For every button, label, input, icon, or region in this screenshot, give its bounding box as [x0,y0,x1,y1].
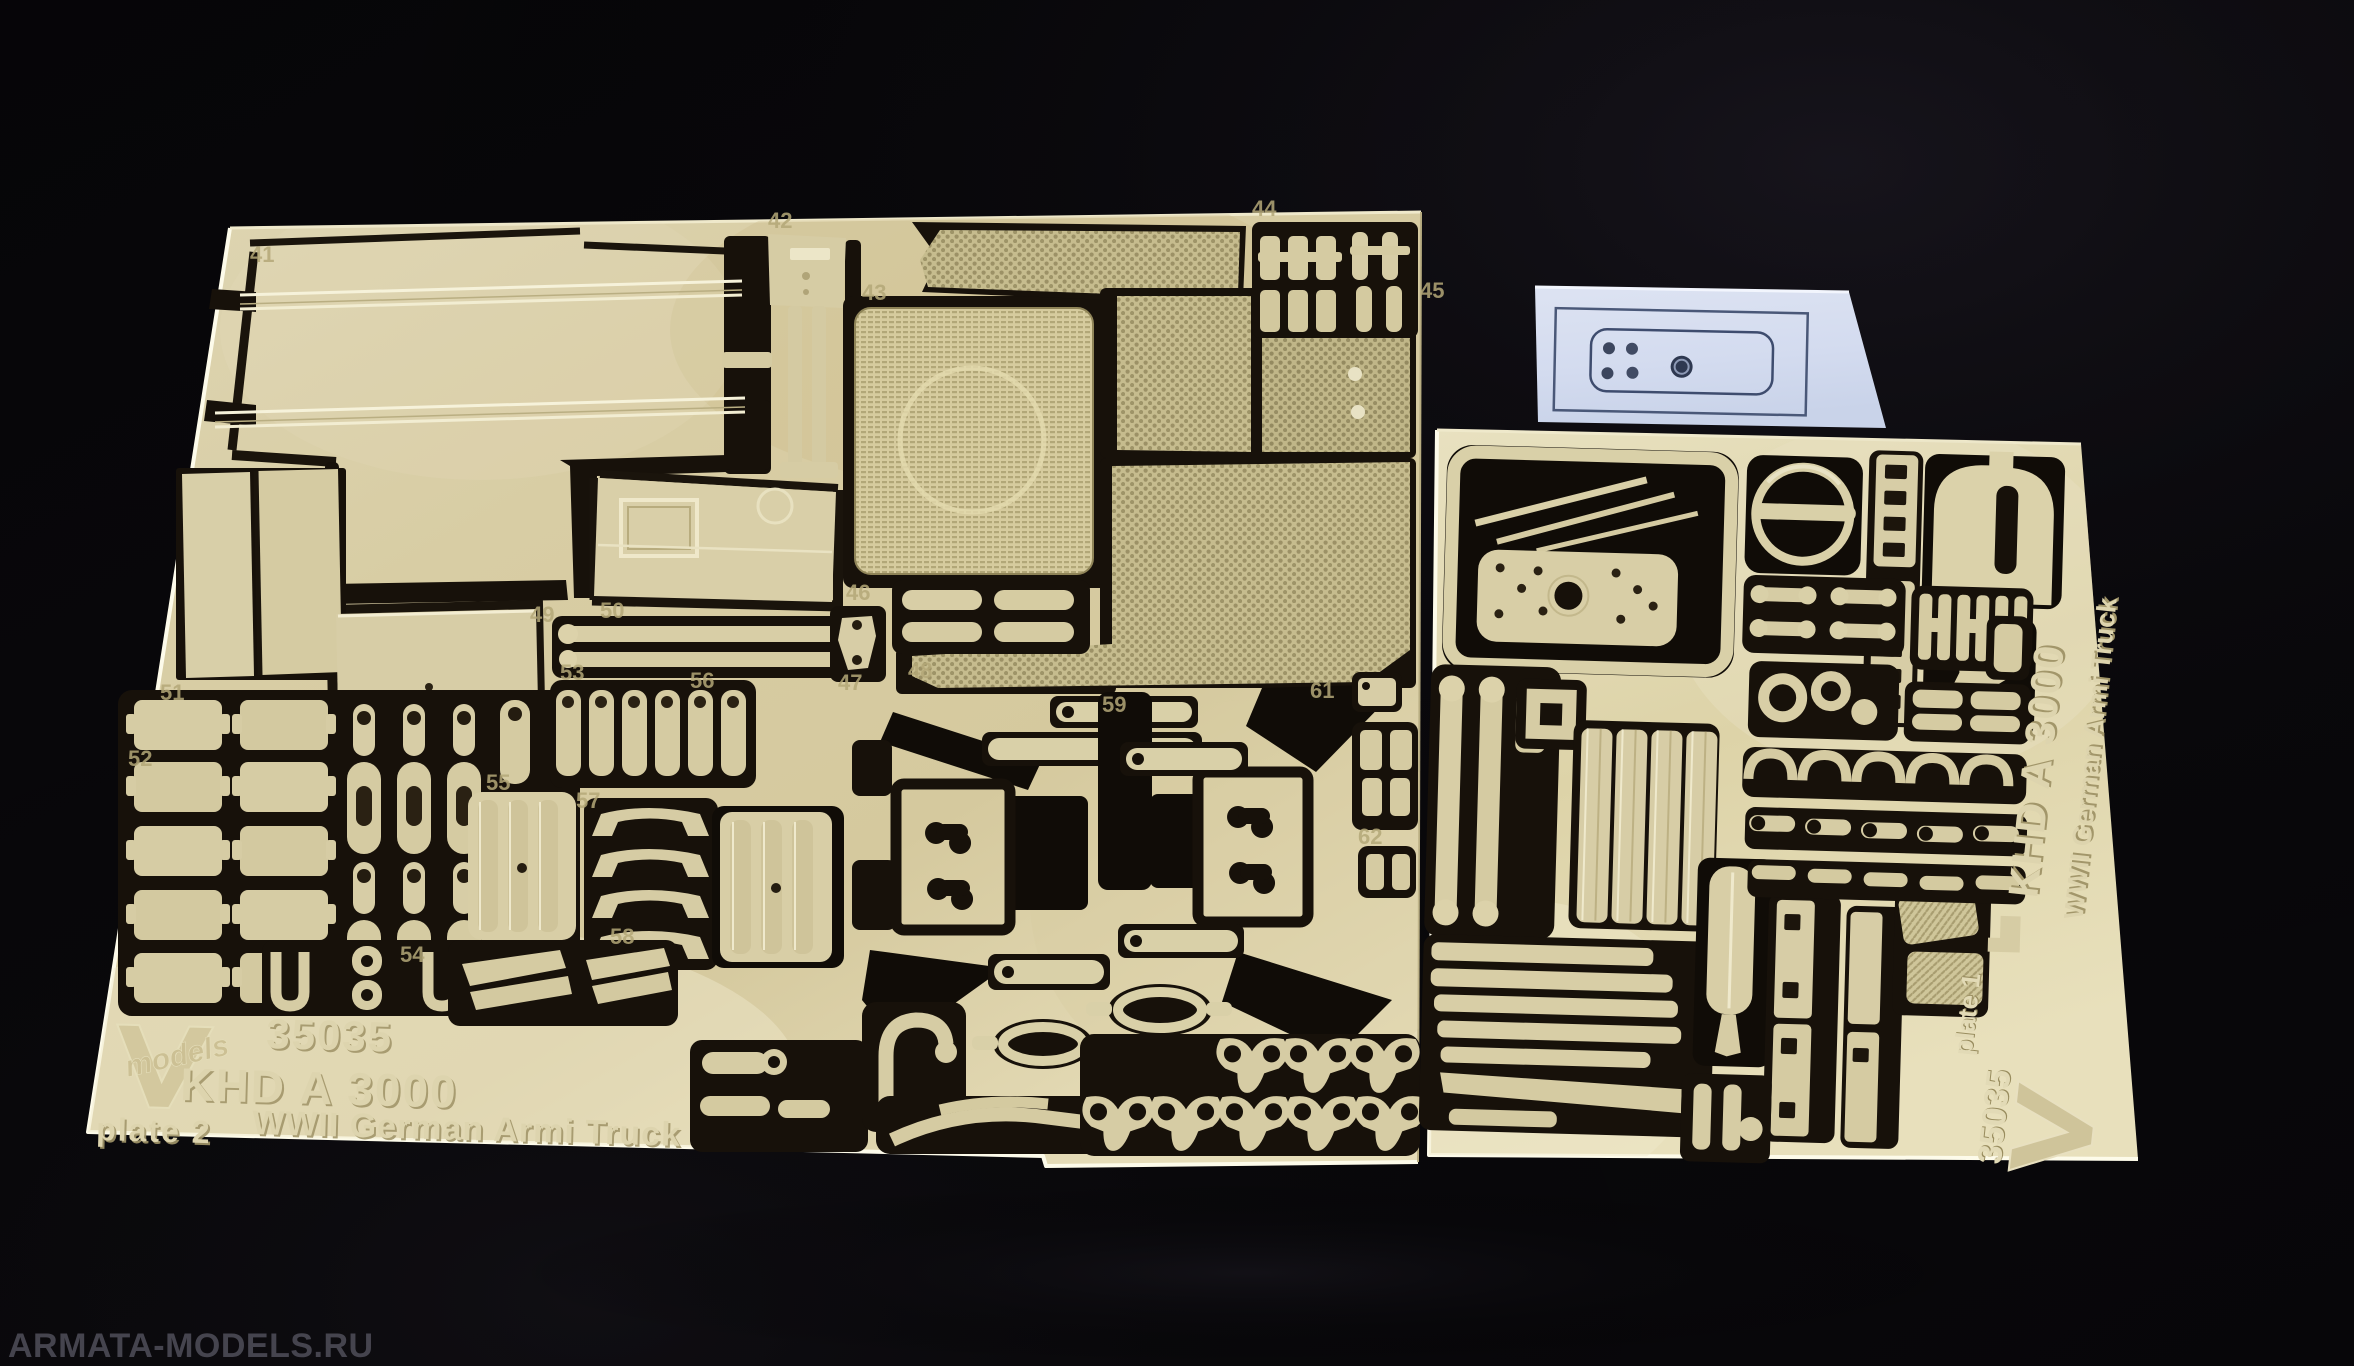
svg-text:49: 49 [530,602,554,627]
svg-text:59: 59 [1102,692,1126,717]
svg-text:ARMATA-MODELS.RU: ARMATA-MODELS.RU [8,1327,374,1365]
svg-text:48: 48 [908,658,932,683]
svg-text:43: 43 [862,280,886,305]
svg-text:54: 54 [400,942,425,967]
svg-text:58: 58 [610,924,634,949]
svg-text:52: 52 [128,746,152,771]
svg-text:42: 42 [768,208,792,233]
svg-text:61: 61 [1310,678,1334,703]
svg-text:41: 41 [250,242,274,267]
svg-text:55: 55 [486,770,510,795]
svg-text:53: 53 [560,660,584,685]
svg-text:44: 44 [1252,196,1277,221]
svg-text:plate 2: plate 2 [96,1111,212,1150]
svg-text:45: 45 [1420,278,1444,303]
svg-text:50: 50 [600,598,624,623]
svg-text:35035: 35035 [266,1010,394,1061]
svg-text:47: 47 [838,670,862,695]
svg-text:56: 56 [690,668,714,693]
svg-text:57: 57 [576,788,600,813]
svg-text:62: 62 [1358,824,1382,849]
svg-text:51: 51 [160,680,184,705]
svg-text:46: 46 [846,580,870,605]
